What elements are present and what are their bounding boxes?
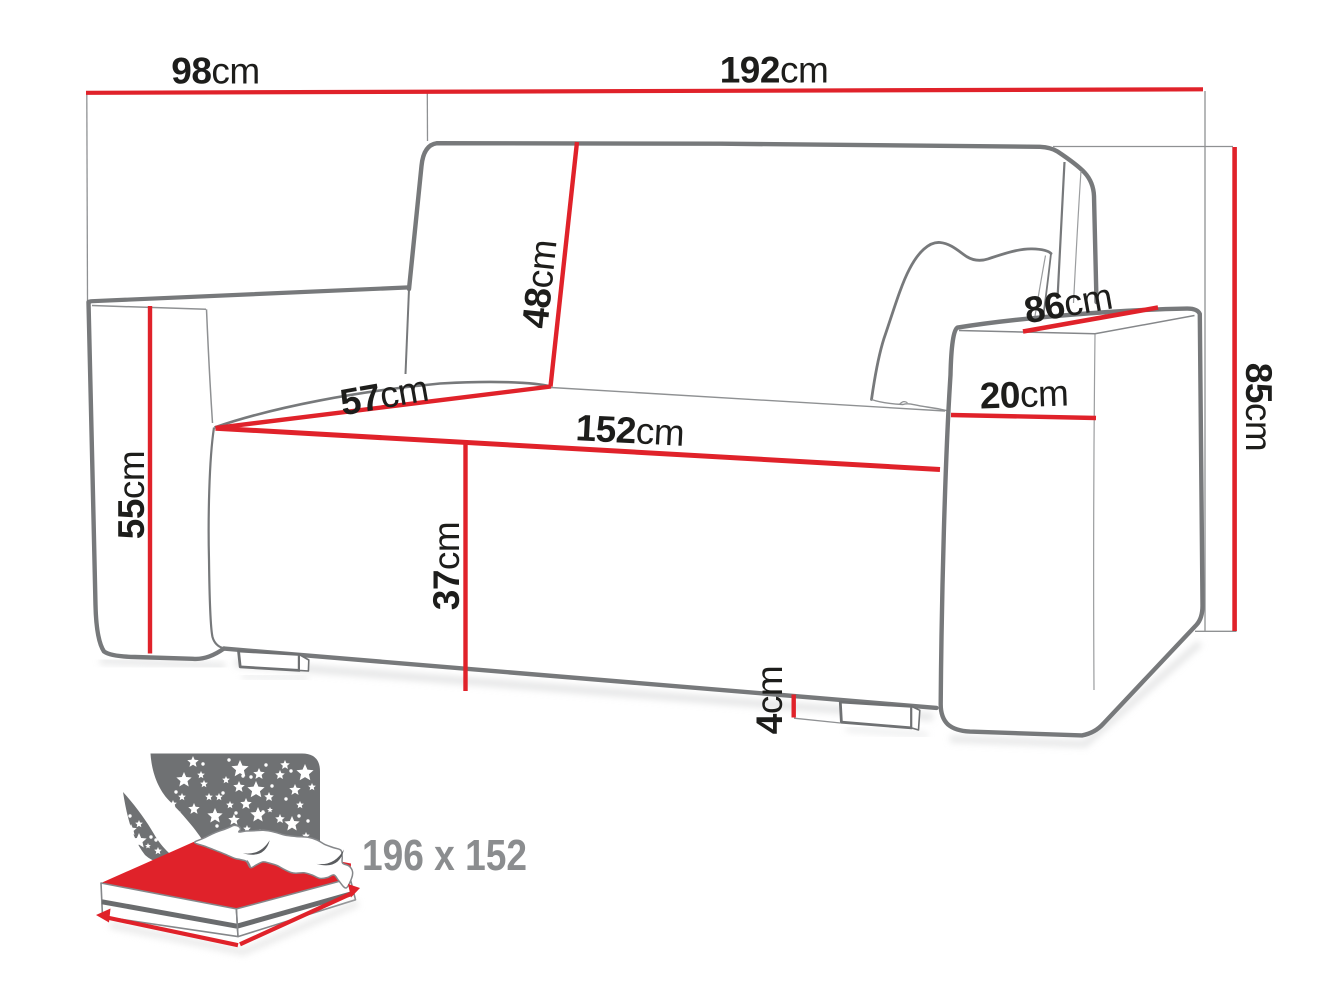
svg-text:192cm: 192cm — [720, 50, 829, 91]
svg-text:55cm: 55cm — [111, 451, 152, 539]
svg-text:98cm: 98cm — [171, 51, 259, 92]
svg-text:4cm: 4cm — [749, 666, 790, 734]
svg-text:152cm: 152cm — [575, 407, 686, 454]
svg-text:37cm: 37cm — [426, 522, 467, 610]
svg-text:85cm: 85cm — [1238, 363, 1279, 451]
svg-text:20cm: 20cm — [979, 372, 1069, 416]
svg-text:196 x 152: 196 x 152 — [362, 831, 527, 880]
